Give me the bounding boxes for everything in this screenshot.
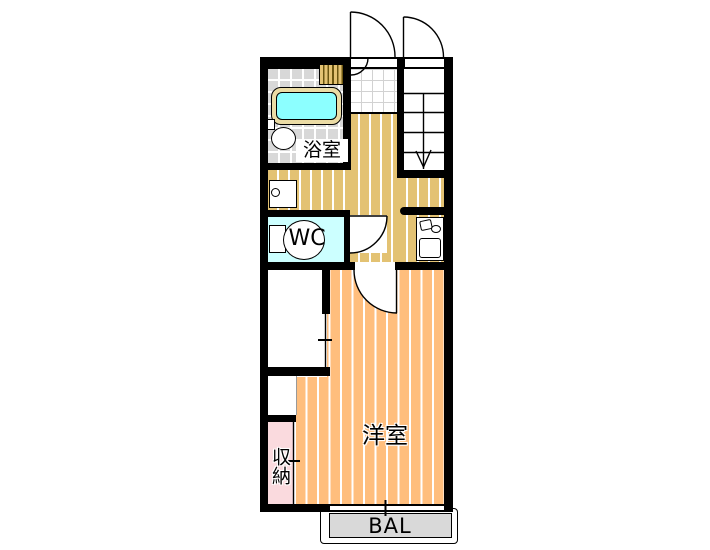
- bathroom-label: 浴室: [296, 139, 348, 162]
- entrance-door-opening: [351, 57, 397, 69]
- wall-void-bottom: [260, 367, 330, 376]
- entrance-door-arc: [351, 12, 396, 57]
- washer-drain: [271, 188, 280, 197]
- wall-kitchen-side: [395, 262, 444, 270]
- balcony-label: BAL: [340, 514, 440, 538]
- stair-down-arrow: [416, 150, 431, 167]
- wall-bottom-left: [260, 504, 330, 512]
- floor-plan: 浴室 WC 洋室 収納 BAL: [0, 0, 710, 550]
- wall-right: [444, 57, 453, 512]
- wall-niche-bottom: [260, 415, 296, 422]
- kitchen-burner: [419, 238, 441, 258]
- wall-void-right: [322, 268, 330, 314]
- wall-wc-bottom: [260, 262, 355, 270]
- washbasin: [271, 127, 296, 150]
- wall-bathroom-bottom: [260, 163, 351, 170]
- wall-kitchen-counter-top: [400, 207, 444, 215]
- wall-stair-left: [397, 57, 404, 178]
- shoe-cabinet: [319, 64, 344, 85]
- wall-stair-bottom: [397, 170, 453, 178]
- stair-door-arc: [404, 17, 444, 57]
- storage-label: 収納: [266, 440, 293, 492]
- wc-label: WC: [287, 225, 327, 252]
- wall-wc-top: [260, 210, 350, 217]
- western-room-label: 洋室: [355, 423, 415, 450]
- bathtub-water: [276, 92, 337, 120]
- balcony-window: [330, 504, 444, 512]
- entrance-tile-floor: [351, 69, 397, 113]
- stair-door-opening: [405, 57, 444, 69]
- kitchen-faucet: [431, 225, 441, 233]
- wc-door-swing-area: [350, 215, 387, 253]
- wall-wc-right: [344, 210, 350, 270]
- western-room-floor: [296, 270, 444, 504]
